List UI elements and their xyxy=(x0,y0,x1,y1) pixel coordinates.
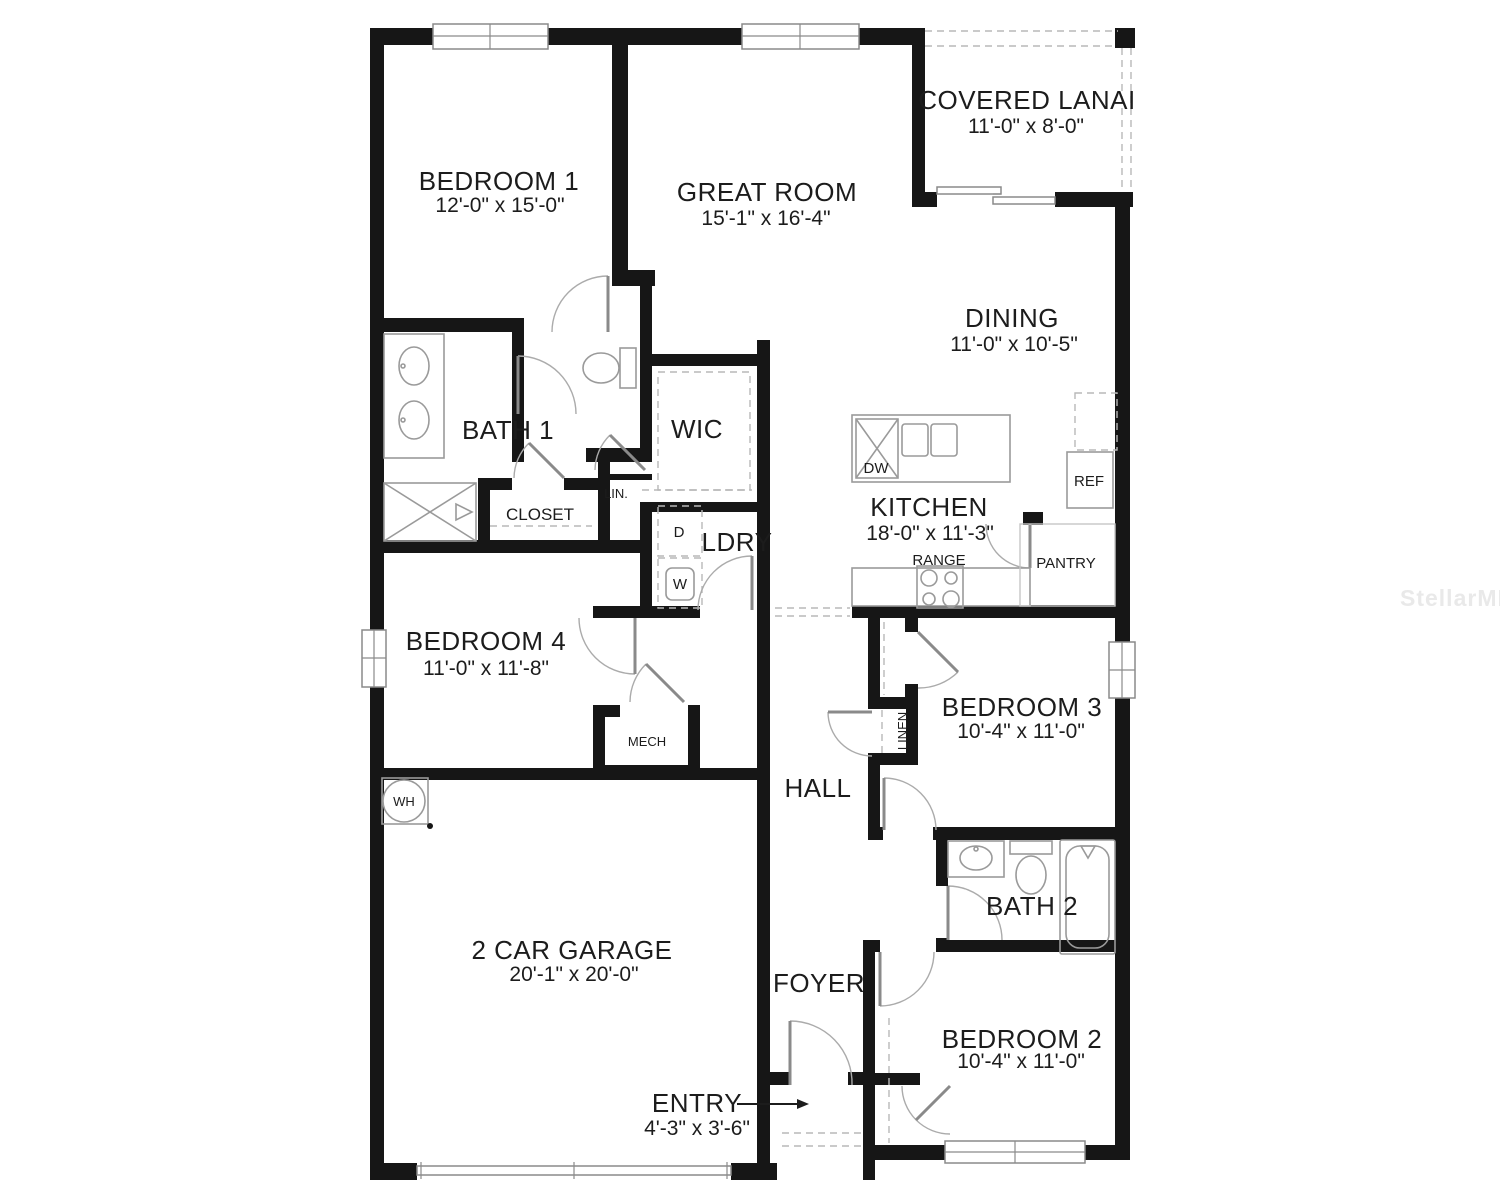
window-bedroom1 xyxy=(433,24,548,49)
dims-garage: 20'-1" x 20'-0" xyxy=(509,963,638,986)
label-mech: MECH xyxy=(628,734,666,749)
label-range: RANGE xyxy=(912,552,965,569)
floor-plan-page: BEDROOM 1 12'-0" x 15'-0" GREAT ROOM 15'… xyxy=(0,0,1500,1200)
door-bedroom1 xyxy=(552,276,608,332)
door-mech xyxy=(630,664,684,702)
dims-entry: 4'-3" x 3'-6" xyxy=(644,1117,750,1140)
window-bedroom3 xyxy=(1109,642,1135,698)
label-lin: LIN. xyxy=(604,486,628,501)
label-kitchen: KITCHEN xyxy=(870,492,988,522)
label-bedroom3: BEDROOM 3 xyxy=(942,692,1103,722)
dims-dining: 11'-0" x 10'-5" xyxy=(950,333,1078,356)
label-closet: CLOSET xyxy=(506,505,574,524)
window-bedroom4 xyxy=(362,630,386,687)
label-bedroom4: BEDROOM 4 xyxy=(406,626,567,656)
label-dw: DW xyxy=(864,460,890,477)
dims-bedroom2: 10'-4" x 11'-0" xyxy=(957,1050,1085,1073)
sink-bath2 xyxy=(948,841,1004,877)
shower-bath1 xyxy=(384,483,476,541)
door-linen xyxy=(828,712,872,756)
door-bedroom2 xyxy=(880,952,934,1006)
label-wic: WIC xyxy=(671,414,723,444)
door-ldry xyxy=(698,556,752,610)
watermark: StellarMLS xyxy=(1400,585,1500,611)
dims-kitchen: 18'-0" x 11'-3" xyxy=(866,522,994,545)
ref-cabinet xyxy=(1075,393,1117,450)
entry-arrow xyxy=(737,1099,809,1109)
label-dryer: D xyxy=(674,524,685,541)
label-washer: W xyxy=(673,576,688,593)
label-covered-lanai: COVERED LANAI xyxy=(918,85,1135,115)
dims-bedroom4: 11'-0" x 11'-8" xyxy=(423,657,549,680)
sliding-door-lanai xyxy=(937,187,1055,204)
range-counter xyxy=(852,566,1030,608)
door-bedroom3 xyxy=(918,632,958,688)
label-hall: HALL xyxy=(784,773,851,803)
label-bath2: BATH 2 xyxy=(986,891,1078,921)
label-bedroom1: BEDROOM 1 xyxy=(419,166,580,196)
label-garage: 2 CAR GARAGE xyxy=(471,935,672,965)
label-linen: LINEN xyxy=(895,712,910,750)
garage-door xyxy=(417,1162,731,1179)
floor-plan-canvas: BEDROOM 1 12'-0" x 15'-0" GREAT ROOM 15'… xyxy=(0,0,1500,1200)
dims-bedroom1: 12'-0" x 15'-0" xyxy=(435,194,564,217)
vanity-bath1 xyxy=(384,334,444,458)
toilet-bath1 xyxy=(583,348,636,388)
dims-covered-lanai: 11'-0" x 8'-0" xyxy=(968,115,1084,138)
window-great-room xyxy=(742,24,859,49)
label-wh: WH xyxy=(393,794,415,809)
door-hall-vestibule xyxy=(884,778,936,830)
window-bedroom2 xyxy=(945,1141,1085,1163)
label-foyer: FOYER xyxy=(773,968,865,998)
label-ldry: LDRY xyxy=(702,527,773,557)
dims-great-room: 15'-1" x 16'-4" xyxy=(701,207,830,230)
door-water-closet xyxy=(518,356,576,414)
label-bath1: BATH 1 xyxy=(462,415,554,445)
toilet-bath2 xyxy=(1010,841,1052,894)
door-bedroom4 xyxy=(579,618,635,674)
label-dining: DINING xyxy=(965,303,1059,333)
label-pantry: PANTRY xyxy=(1036,555,1095,572)
label-entry: ENTRY xyxy=(652,1088,742,1118)
label-ref: REF xyxy=(1074,473,1104,490)
label-great-room: GREAT ROOM xyxy=(677,177,857,207)
door-closet-bedroom2 xyxy=(902,1086,950,1134)
dims-bedroom3: 10'-4" x 11'-0" xyxy=(957,720,1085,743)
door-front-entry xyxy=(790,1021,852,1085)
